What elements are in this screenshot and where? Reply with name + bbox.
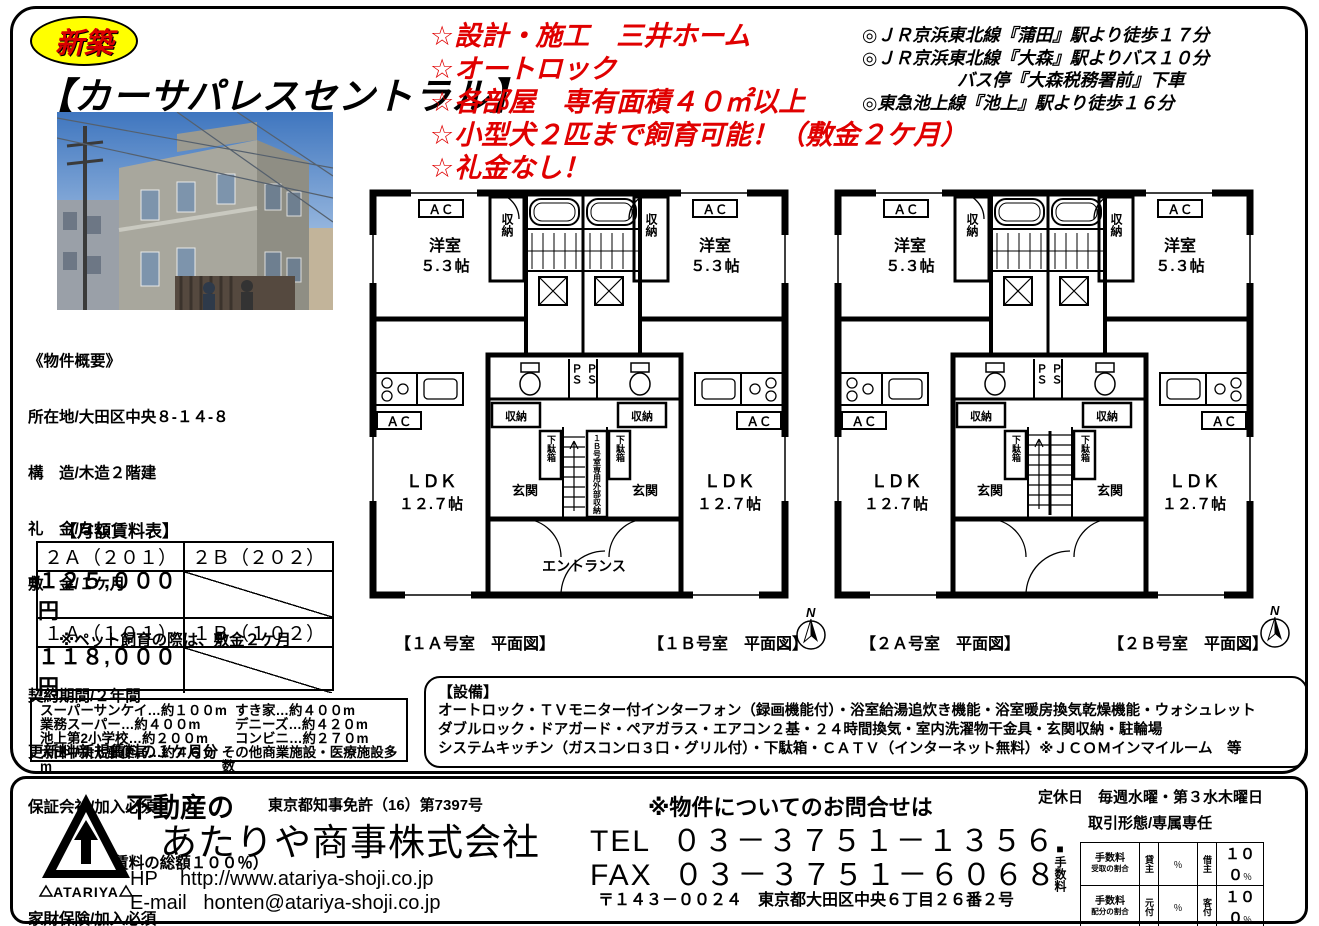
washer-icons — [539, 277, 623, 305]
overview-line: 所在地/大田区中央８-１４-８ — [28, 409, 327, 428]
genkan-label: 玄関 — [512, 483, 538, 498]
ac-label: ＡＣ — [702, 203, 727, 217]
equipment-heading: 【設備】 — [438, 683, 1294, 702]
rent-price-row: １２５,０００円 — [38, 572, 332, 619]
price-cell-crossed — [185, 648, 332, 693]
facility: デニーズ…約４２０m — [235, 718, 368, 732]
logo-notch — [52, 810, 68, 830]
room-label: 洋室 — [429, 236, 461, 255]
fee-party: 元付 — [1140, 886, 1159, 926]
facility: 池上第2小学校…約２００m — [40, 732, 235, 746]
equipment-line: ダブルロック・ドアガード・ペアガラス・エアコン２基・２４時間換気・室内洗濯物干金… — [438, 721, 1294, 740]
closet-label: 収納 — [631, 409, 653, 423]
ac-label: ＡＣ — [851, 415, 876, 429]
facility: スーパーサンケイ…約１００m — [40, 704, 235, 718]
floor-plan-second-floor: 洋室 ５.３帖 洋室 ５.３帖 収納 収納 ＡＣ ＡＣ ＡＣ ＡＣ ＬＤＫ １２… — [828, 183, 1260, 623]
facility: コンビニ…約２７０m — [235, 732, 369, 746]
facility: その他商業施設・医療施設多数 — [222, 746, 398, 774]
washer-icons — [1004, 277, 1088, 305]
plan-caption-1b: 【１Ｂ号室 平面図】 — [648, 630, 808, 654]
north-label: N — [1270, 603, 1280, 618]
fee-sublabel: 受取の割合 — [1083, 864, 1137, 874]
closet-label: 収納 — [500, 213, 514, 238]
ps-label: ＰＳ — [1050, 363, 1062, 385]
fee-party: 借主 — [1198, 843, 1217, 886]
fee-row: 手数料受取の割合 貸主 ％ 借主 １００％ — [1081, 843, 1264, 886]
company-name: あたりや商事株式会社 — [160, 812, 540, 866]
facility: 業務スーパー…約４００m — [40, 718, 235, 732]
external-storage-label: １Ｂ号室専用外部収納 — [592, 434, 602, 515]
overview-heading: 《物件概要》 — [28, 353, 327, 372]
fee-percent: ％ — [1159, 843, 1198, 886]
stairs-2f — [1028, 431, 1072, 515]
equipment-box: 【設備】 オートロック・ＴＶモニター付インターフォン（録画機能付）・浴室給湯追炊… — [424, 676, 1308, 768]
hp-label: HP — [130, 868, 158, 890]
equipment-line: オートロック・ＴＶモニター付インターフォン（録画機能付）・浴室給湯追炊き機能・浴… — [438, 702, 1294, 721]
ldk-size-label: １２.７帖 — [1162, 495, 1226, 513]
fee-sublabel: 配分の割合 — [1083, 907, 1137, 917]
unit-cell: ２Ｂ（２０２） — [185, 543, 332, 570]
price-cell: １２５,０００円 — [38, 572, 185, 617]
genkan-label: 玄関 — [1097, 483, 1123, 498]
shoe-box-label: 下駄箱 — [1011, 435, 1022, 463]
email-address[interactable]: honten@atariya-shoji.co.jp — [203, 892, 440, 914]
fee-row: 手数料配分の割合 元付 ％ 客付 １００％ — [1081, 886, 1264, 926]
closet-label: 収納 — [1096, 409, 1118, 423]
rent-table-heading: 【月額賃料表】 — [60, 517, 179, 542]
closet-label: 収納 — [505, 409, 527, 423]
north-label: N — [806, 605, 816, 620]
fee-label: 手数料 — [1083, 854, 1137, 864]
fee-party: 貸主 — [1140, 843, 1159, 886]
fee-percent: ％ — [1159, 886, 1198, 926]
floor-plan-first-floor: 洋室 ５.３帖 洋室 ５.３帖 収納 収納 ＡＣ ＡＣ ＡＣ ＡＣ ＬＤＫ １２… — [363, 183, 795, 623]
feature-line: ☆礼金なし！ — [430, 152, 967, 185]
ac-label: ＡＣ — [386, 415, 411, 429]
ldk-label: ＬＤＫ — [871, 472, 922, 491]
fee-unit: ％ — [1243, 872, 1252, 882]
ac-label: ＡＣ — [893, 203, 918, 217]
access-line: ◎ＪＲ京浜東北線『大森』駅よりバス１０分 — [862, 47, 1209, 70]
fee-party: 客付 — [1198, 886, 1217, 926]
homepage-line: HP http://www.atariya-shoji.co.jp — [130, 868, 433, 891]
nearby-facilities: スーパーサンケイ…約１００mすき家…約４００m 業務スーパー…約４００mデニーズ… — [30, 698, 408, 762]
north-compass: N — [790, 604, 832, 654]
ldk-label: ＬＤＫ — [406, 472, 457, 491]
ac-label: ＡＣ — [1211, 415, 1236, 429]
room-size-label: ５.３帖 — [420, 257, 469, 275]
closet-label: 収納 — [1109, 213, 1123, 238]
email-line: E-mail honten@atariya-shoji.co.jp — [130, 892, 440, 915]
ac-tags — [842, 200, 1246, 429]
closet-label: 収納 — [970, 409, 992, 423]
logo-text: ATARIYA — [53, 884, 119, 900]
overview-line: 構 造/木造２階建 — [28, 465, 327, 484]
ps-label: ＰＳ — [585, 363, 597, 385]
ac-label: ＡＣ — [746, 415, 771, 429]
genkan-label: 玄関 — [632, 483, 658, 498]
ac-label: ＡＣ — [1167, 203, 1192, 217]
north-compass: N — [1254, 602, 1296, 652]
room-size-label: ５.３帖 — [1155, 257, 1204, 275]
price-cell-crossed — [185, 572, 332, 617]
ldk-size-label: １２.７帖 — [399, 495, 463, 513]
building-photo — [57, 112, 333, 310]
ps-label: ＰＳ — [1035, 363, 1047, 385]
neighbor-building-right — [307, 228, 333, 310]
email-label: E-mail — [130, 892, 187, 914]
shoe-box-label: 下駄箱 — [1080, 435, 1091, 463]
closet-label: 収納 — [644, 213, 658, 238]
plan-labels: 洋室 ５.３帖 洋室 ５.３帖 収納 収納 ＡＣ ＡＣ ＡＣ ＡＣ ＬＤＫ １２… — [851, 203, 1236, 513]
door-arcs — [958, 193, 1120, 595]
shoe-box-label: 下駄箱 — [546, 435, 557, 463]
shoe-box-label: 下駄箱 — [615, 435, 626, 463]
price-cell: １１８,０００円 — [38, 648, 185, 693]
facility: 大田中央七郵便局…約４６０m — [40, 746, 222, 774]
ldk-size-label: １２.７帖 — [864, 495, 928, 513]
new-construction-badge: 新築 — [30, 16, 138, 66]
ldk-label: ＬＤＫ — [704, 472, 755, 491]
genkan-label: 玄関 — [977, 483, 1003, 498]
access-line: バス停『大森税務署前』下車 — [862, 69, 1209, 92]
room-label: 洋室 — [894, 236, 926, 255]
equipment-line: システムキッチン（ガスコンロ３口・グリル付）・下駄箱・ＣＡＴＶ（インターネット無… — [438, 740, 1294, 759]
deal-type: 取引形態/専属専任 — [1088, 812, 1212, 833]
plan-caption-2a: 【２Ａ号室 平面図】 — [860, 630, 1020, 654]
fence — [175, 276, 295, 310]
building-photo-art — [57, 112, 333, 310]
room-label: 洋室 — [699, 236, 731, 255]
access-info: ◎ＪＲ京浜東北線『蒲田』駅より徒歩１７分 ◎ＪＲ京浜東北線『大森』駅よりバス１０… — [862, 24, 1209, 114]
room-size-label: ５.３帖 — [690, 257, 739, 275]
flyer-page: 新築 【カーサパレスセントラル】 — [0, 0, 1319, 926]
room-size-label: ５.３帖 — [885, 257, 934, 275]
ac-label: ＡＣ — [428, 203, 453, 217]
closet-label: 収納 — [965, 213, 979, 238]
rent-table: ２Ａ（２０１） ２Ｂ（２０２） １２５,０００円 １Ａ（１０１） １Ｂ（１０２）… — [36, 541, 334, 691]
company-logo: ATARIYA — [38, 790, 134, 908]
fee-label: 手数料 — [1083, 897, 1137, 907]
door-arcs — [493, 193, 655, 595]
plan-caption-1a: 【１Ａ号室 平面図】 — [395, 630, 555, 654]
access-line: ◎ＪＲ京浜東北線『蒲田』駅より徒歩１７分 — [862, 24, 1209, 47]
fee-table: 手数料受取の割合 貸主 ％ 借主 １００％ 手数料配分の割合 元付 ％ 客付 １… — [1080, 842, 1264, 926]
badge-label: 新築 — [55, 20, 113, 62]
unit-cell: １Ｂ（１０２） — [185, 619, 332, 646]
ldk-size-label: １２.７帖 — [697, 495, 761, 513]
fee-unit: ％ — [1243, 915, 1252, 925]
company-address: 〒１４３－００２４ 東京都大田区中央６丁目２６番２号 — [598, 886, 1014, 910]
entrance-hall-label: エントランス — [542, 558, 626, 574]
holiday-note: 定休日 毎週水曜・第３水木曜日 — [1038, 786, 1263, 807]
fee-side-label: ■手数料 — [1052, 842, 1068, 904]
ldk-label: ＬＤＫ — [1169, 472, 1220, 491]
ac-tags — [377, 200, 781, 429]
feature-line: ☆小型犬２匹まで飼育可能！（敷金２ケ月） — [430, 119, 967, 152]
stairs-1f — [563, 437, 585, 511]
facility: すき家…約４００m — [235, 704, 355, 718]
room-label: 洋室 — [1164, 236, 1196, 255]
hp-url[interactable]: http://www.atariya-shoji.co.jp — [180, 868, 433, 890]
access-line: ◎東急池上線『池上』駅より徒歩１６分 — [862, 92, 1209, 115]
plan-caption-2b: 【２Ｂ号室 平面図】 — [1108, 630, 1268, 654]
ps-label: ＰＳ — [570, 363, 582, 385]
rent-price-row: １１８,０００円 — [38, 648, 332, 693]
